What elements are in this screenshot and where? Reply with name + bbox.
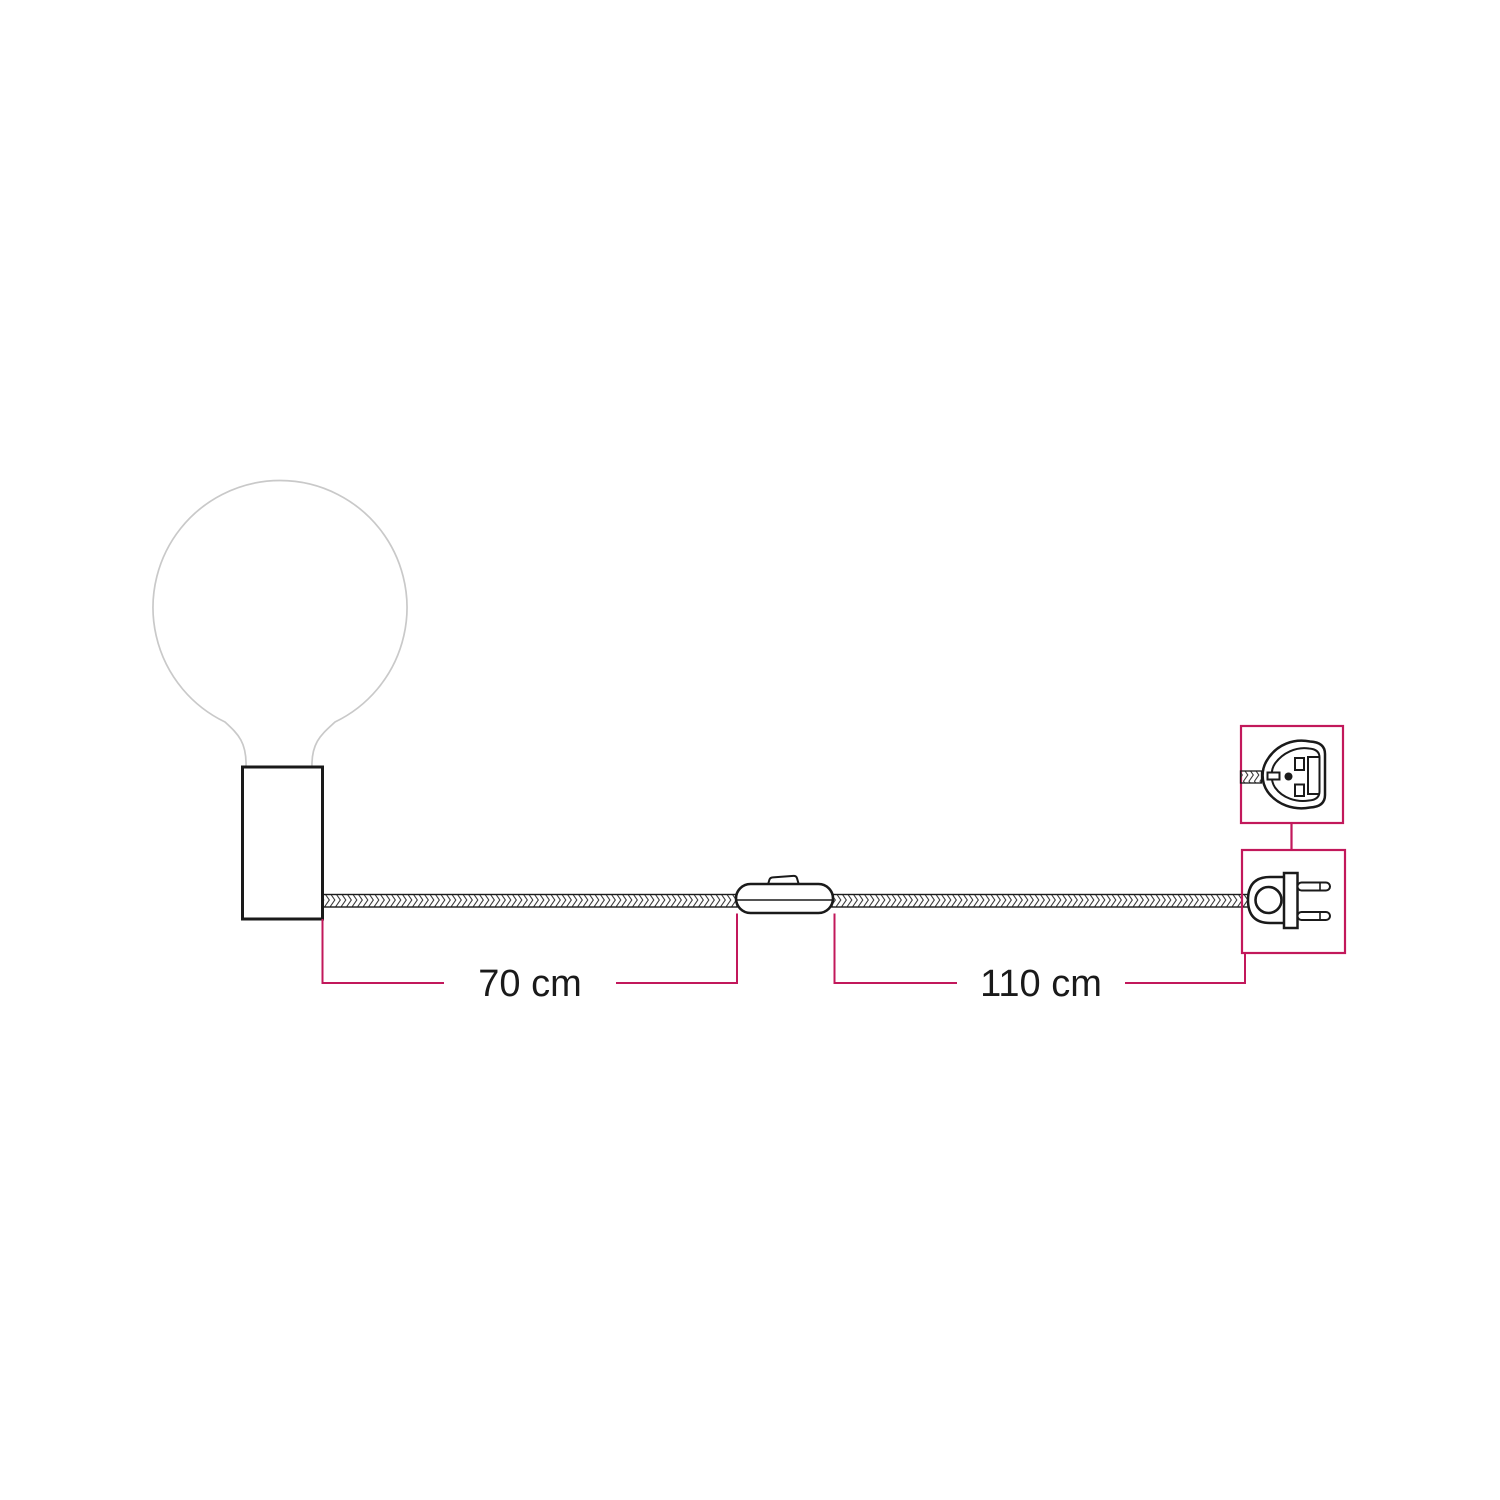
side-slot (1268, 773, 1280, 780)
switch-body (736, 884, 833, 913)
plug-flange (1284, 873, 1298, 928)
cable-left-segment (321, 895, 737, 908)
pin-hole-top (1295, 758, 1304, 770)
cable-right-segment (832, 895, 1262, 908)
plug-pin-top (1298, 883, 1331, 891)
pin-hole-bottom (1295, 785, 1304, 797)
center-screw-dot (1285, 773, 1293, 781)
plug-ring-hole (1256, 887, 1282, 913)
lamp-holder-icon (243, 767, 323, 919)
measurement-110-label: 110 cm (980, 963, 1102, 1005)
diagram-svg: 70 cm 110 cm (0, 0, 1500, 1500)
lamp-dimensions-diagram: 70 cm 110 cm (0, 0, 1500, 1500)
measurement-70-label: 70 cm (478, 963, 581, 1005)
plug-pin-bottom (1298, 912, 1331, 920)
cable-stub (1241, 771, 1262, 783)
